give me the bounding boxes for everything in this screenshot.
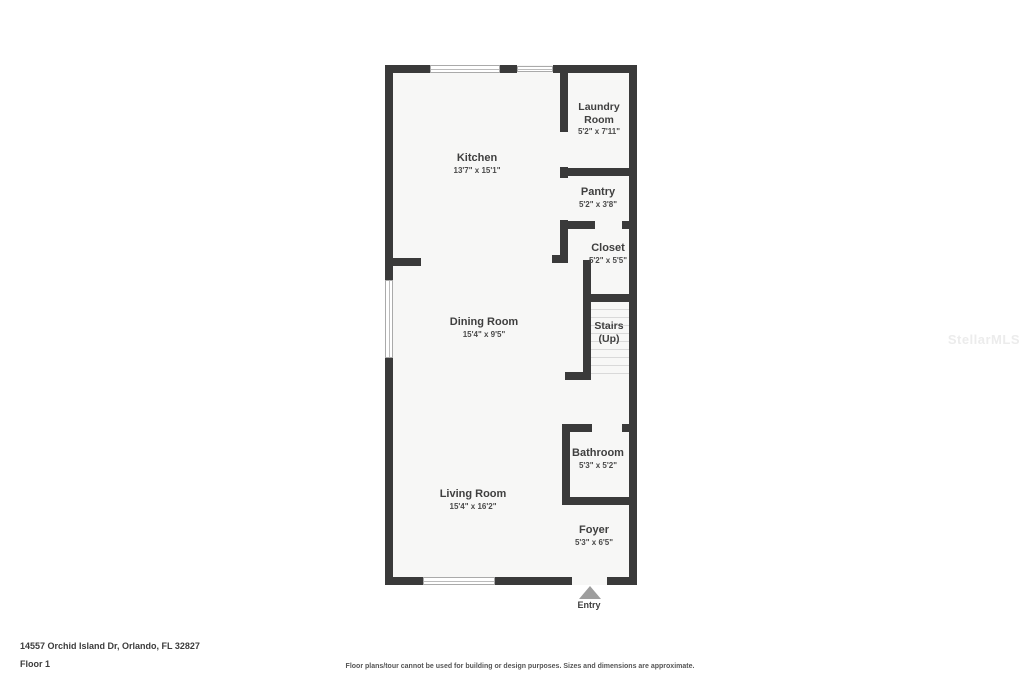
foyer-name: Foyer [575,524,613,537]
wall-stairs-bottom-stub [565,372,583,380]
mls-watermark: StellarMLS [948,332,1020,347]
disclaimer-text: Floor plans/tour cannot be used for buil… [340,663,700,670]
bathroom-name: Bathroom [572,447,624,460]
room-label-stairs: Stairs (Up) [594,320,623,345]
wall-bathroom-left [562,424,570,505]
wall-bottom-left-segment [385,577,423,585]
room-label-dining: Dining Room 15'4" x 9'5" [450,316,518,340]
wall-stairs-left [583,260,591,380]
wall-laundry-left [560,73,568,132]
wall-top-mid-segment [500,65,517,73]
wall-left-upper-segment [385,65,393,280]
floor-plan-page: Kitchen 13'7" x 15'1" Laundry Room 5'2" … [0,0,1024,682]
window-left-dining [385,280,393,358]
wall-laundry-pantry-divider [560,168,629,176]
wall-bottom-mid-segment [495,577,572,585]
room-label-laundry: Laundry Room 5'2" x 7'11" [578,101,620,137]
kitchen-name: Kitchen [454,152,501,165]
laundry-name-line2: Room [578,114,620,127]
wall-pantry-bottom-left [560,221,595,229]
entry-arrow-icon [579,586,601,599]
stairs-name-line2: (Up) [594,333,623,346]
wall-bathroom-bottom [562,497,629,505]
pantry-dimensions: 5'2" x 3'8" [579,199,617,210]
living-dimensions: 15'4" x 16'2" [440,501,507,512]
dining-dimensions: 15'4" x 9'5" [450,329,518,340]
wall-bottom-right-segment [607,577,637,585]
room-label-bathroom: Bathroom 5'3" x 5'2" [572,447,624,471]
window-top-kitchen [430,65,500,73]
room-label-pantry: Pantry 5'2" x 3'8" [579,186,617,210]
foyer-dimensions: 5'3" x 6'5" [575,537,613,548]
property-address: 14557 Orchid Island Dr, Orlando, FL 3282… [20,641,200,651]
floor-number-label: Floor 1 [20,659,50,669]
room-label-foyer: Foyer 5'3" x 6'5" [575,524,613,548]
room-label-living: Living Room 15'4" x 16'2" [440,488,507,512]
window-top-kitchen-right [517,66,553,72]
wall-left-lower-segment [385,358,393,585]
wall-bathroom-top-right [622,424,629,432]
window-bottom-living [423,577,495,585]
floor-plan: Kitchen 13'7" x 15'1" Laundry Room 5'2" … [385,65,637,585]
wall-kitchen-dining-stub [393,258,421,266]
room-label-closet: Closet 5'2" x 5'5" [589,242,627,266]
living-name: Living Room [440,488,507,501]
wall-closet-stairs-divider [583,294,629,302]
closet-name: Closet [589,242,627,255]
wall-closet-left-stub [552,255,560,263]
bathroom-dimensions: 5'3" x 5'2" [572,460,624,471]
kitchen-dimensions: 13'7" x 15'1" [454,165,501,176]
pantry-name: Pantry [579,186,617,199]
laundry-dimensions: 5'2" x 7'11" [578,126,620,137]
wall-right [629,65,637,585]
entry-label: Entry [577,600,600,610]
wall-pantry-bottom-right [622,221,629,229]
laundry-name-line1: Laundry [578,101,620,114]
stairs-name-line1: Stairs [594,320,623,333]
wall-top-right-segment [553,65,637,73]
room-label-kitchen: Kitchen 13'7" x 15'1" [454,152,501,176]
dining-name: Dining Room [450,316,518,329]
closet-dimensions: 5'2" x 5'5" [589,255,627,266]
